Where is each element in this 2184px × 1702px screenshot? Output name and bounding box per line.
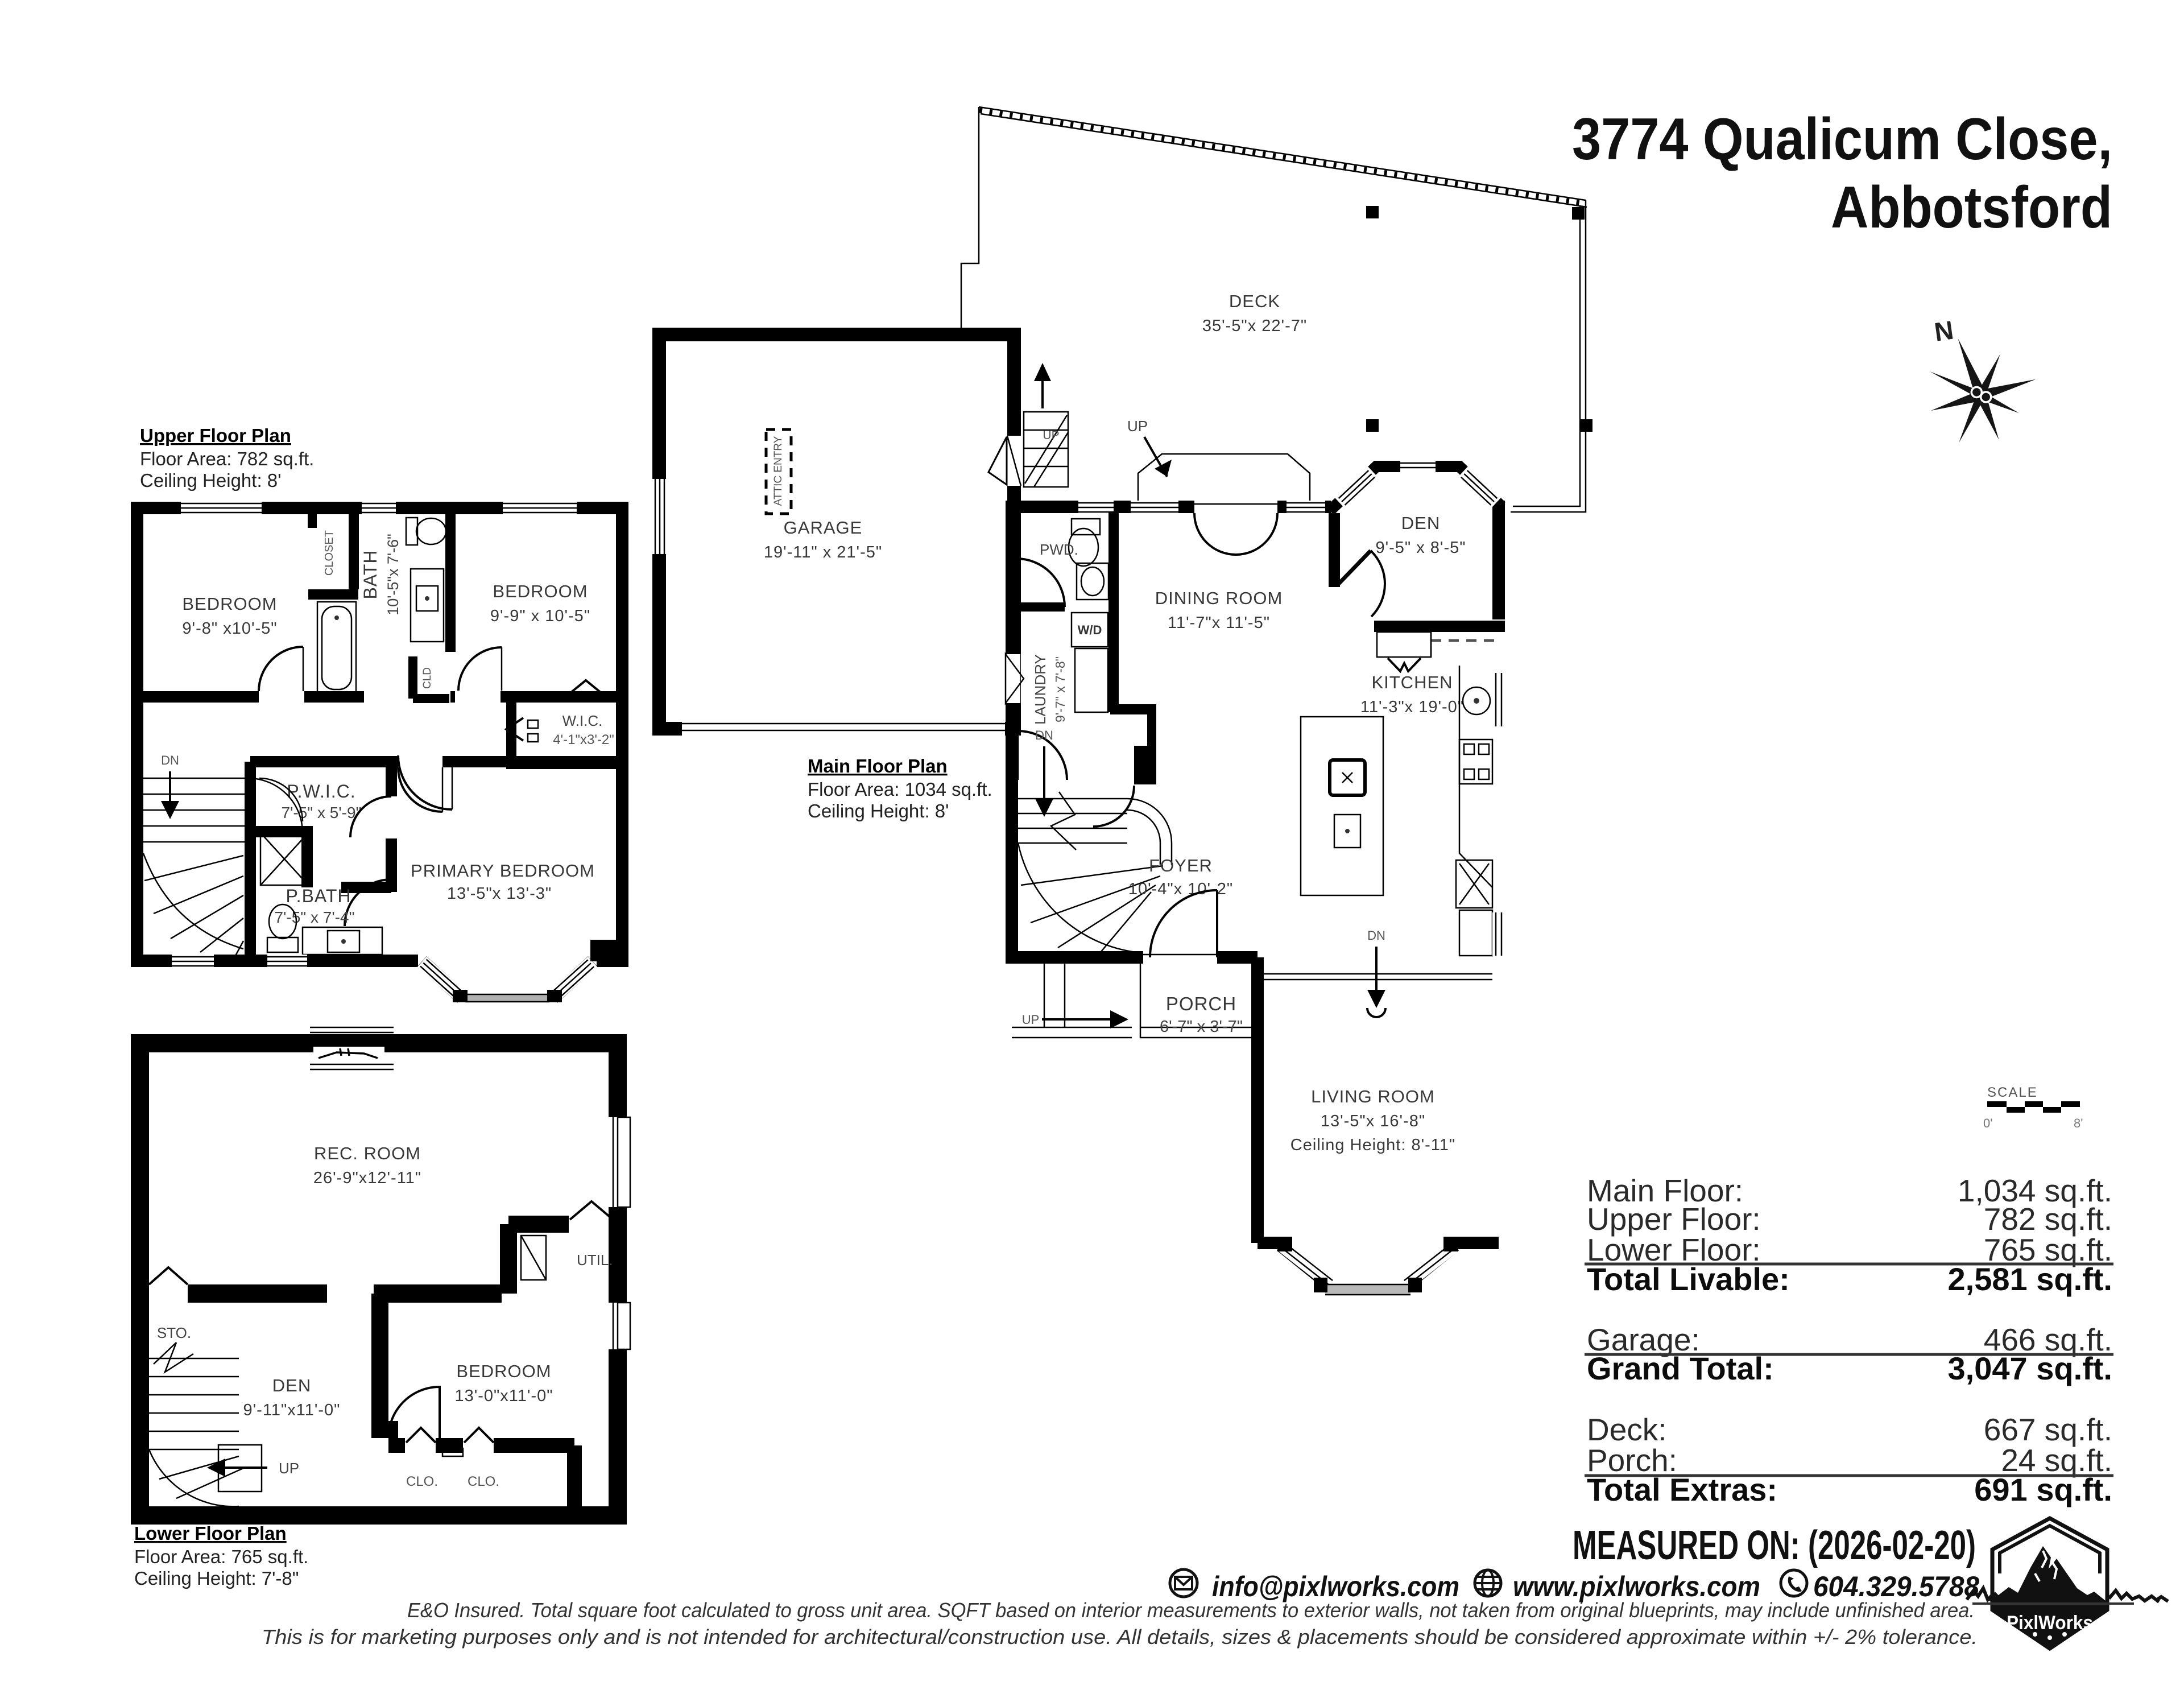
svg-text:3,047 sq.ft.: 3,047 sq.ft. (1948, 1350, 2112, 1386)
svg-text:11'-3"x 19'-0": 11'-3"x 19'-0" (1360, 698, 1464, 716)
svg-text:782 sq.ft.: 782 sq.ft. (1984, 1201, 2112, 1237)
svg-text:KITCHEN: KITCHEN (1371, 672, 1453, 692)
svg-text:PWD.: PWD. (1040, 541, 1078, 558)
svg-text:0': 0' (1983, 1116, 1992, 1130)
svg-text:10'-5"x 7'-6": 10'-5"x 7'-6" (384, 534, 402, 615)
svg-text:13'-5"x 13'-3": 13'-5"x 13'-3" (447, 885, 552, 903)
svg-text:Upper Floor Plan: Upper Floor Plan (140, 425, 291, 446)
svg-text:LIVING ROOM: LIVING ROOM (1311, 1087, 1435, 1106)
svg-text:ATTIC ENTRY: ATTIC ENTRY (772, 436, 784, 506)
svg-text:PORCH: PORCH (1166, 993, 1236, 1014)
svg-text:9'-9" x 10'-5": 9'-9" x 10'-5" (490, 607, 590, 625)
svg-text:9'-11"x11'-0": 9'-11"x11'-0" (243, 1401, 341, 1419)
svg-text:2,581 sq.ft.: 2,581 sq.ft. (1948, 1261, 2112, 1297)
svg-text:DECK: DECK (1229, 291, 1280, 311)
svg-text:SCALE: SCALE (1987, 1085, 2038, 1100)
svg-text:STO.: STO. (157, 1324, 191, 1341)
svg-text:13'-5"x 16'-8": 13'-5"x 16'-8" (1321, 1112, 1425, 1130)
svg-text:Ceiling Height: 8'-11": Ceiling Height: 8'-11" (1290, 1136, 1455, 1154)
svg-text:Floor Area: 782 sq.ft.: Floor Area: 782 sq.ft. (140, 448, 314, 469)
svg-text:19'-11" x 21'-5": 19'-11" x 21'-5" (764, 543, 882, 561)
svg-text:4'-1"x3'-2": 4'-1"x3'-2" (553, 732, 614, 747)
svg-text:8': 8' (2074, 1116, 2083, 1130)
svg-text:Main Floor Plan: Main Floor Plan (808, 755, 948, 776)
svg-text:MEASURED ON: (2026-02-20): MEASURED ON: (2026-02-20) (1573, 1523, 1976, 1568)
svg-text:BATH: BATH (360, 550, 380, 600)
svg-text:CLO.: CLO. (406, 1474, 438, 1489)
svg-text:P.BATH: P.BATH (286, 886, 351, 906)
svg-text:DINING ROOM: DINING ROOM (1155, 588, 1283, 608)
svg-text:Floor Area: 1034 sq.ft.: Floor Area: 1034 sq.ft. (808, 779, 992, 800)
svg-text:This is for marketing purposes: This is for marketing purposes only and … (262, 1625, 1978, 1649)
svg-text:Lower Floor Plan: Lower Floor Plan (134, 1523, 287, 1544)
svg-text:E&O Insured. Total square foo: E&O Insured. Total square foot calculate… (407, 1598, 1975, 1622)
svg-text:W/D: W/D (1078, 623, 1102, 637)
svg-text:BEDROOM: BEDROOM (456, 1361, 551, 1381)
svg-text:REC. ROOM: REC. ROOM (314, 1143, 421, 1163)
svg-text:UP: UP (279, 1460, 299, 1477)
svg-text:DN: DN (1035, 728, 1053, 742)
svg-text:667 sq.ft.: 667 sq.ft. (1984, 1412, 2112, 1447)
svg-text:Ceiling Height: 8': Ceiling Height: 8' (140, 470, 281, 491)
svg-text:Floor Area: 765 sq.ft.: Floor Area: 765 sq.ft. (134, 1546, 308, 1567)
svg-text:Total Livable:: Total Livable: (1587, 1261, 1790, 1297)
svg-text:BEDROOM: BEDROOM (493, 581, 588, 601)
svg-text:UP: UP (1127, 418, 1148, 435)
svg-text:7'-5" x 5'-9": 7'-5" x 5'-9" (281, 804, 361, 821)
svg-text:604.329.5788: 604.329.5788 (1813, 1571, 1979, 1602)
svg-text:691 sq.ft.: 691 sq.ft. (1974, 1472, 2112, 1507)
svg-text:CLD: CLD (421, 667, 433, 689)
svg-text:UP: UP (1022, 1013, 1040, 1027)
svg-text:LAUNDRY: LAUNDRY (1032, 654, 1049, 725)
svg-text:6'-7" x 3'-7": 6'-7" x 3'-7" (1160, 1018, 1243, 1036)
svg-text:DN: DN (1367, 928, 1385, 943)
svg-text:Ceiling Height: 7'-8": Ceiling Height: 7'-8" (134, 1568, 299, 1589)
svg-text:13'-0"x11'-0": 13'-0"x11'-0" (454, 1387, 553, 1405)
svg-text:Upper Floor:: Upper Floor: (1587, 1201, 1761, 1237)
svg-text:GARAGE: GARAGE (784, 518, 863, 538)
svg-text:Abbotsford: Abbotsford (1831, 175, 2112, 241)
svg-text:35'-5"x 22'-7": 35'-5"x 22'-7" (1202, 317, 1307, 335)
svg-text:BEDROOM: BEDROOM (182, 594, 277, 614)
svg-text:11'-7"x 11'-5": 11'-7"x 11'-5" (1168, 614, 1270, 632)
svg-text:PRIMARY BEDROOM: PRIMARY BEDROOM (411, 861, 595, 881)
svg-text:9'-5" x 8'-5": 9'-5" x 8'-5" (1375, 539, 1466, 557)
svg-text:UTIL.: UTIL. (577, 1251, 613, 1269)
svg-text:9'-8" x10'-5": 9'-8" x10'-5" (182, 619, 277, 638)
svg-text:Grand Total:: Grand Total: (1587, 1350, 1774, 1386)
svg-text:info@pixlworks.com: info@pixlworks.com (1212, 1571, 1459, 1602)
svg-text:DN: DN (161, 753, 179, 767)
svg-text:W.I.C.: W.I.C. (562, 712, 603, 729)
svg-text:CLOSET: CLOSET (323, 530, 336, 576)
svg-text:P.W.I.C.: P.W.I.C. (287, 781, 355, 802)
svg-text:Deck:: Deck: (1587, 1412, 1667, 1447)
svg-text:FOYER: FOYER (1149, 856, 1213, 875)
svg-text:DEN: DEN (272, 1375, 311, 1395)
svg-text:9'-7" x 7'-8": 9'-7" x 7'-8" (1053, 656, 1068, 722)
svg-text:3774 Qualicum Close,: 3774 Qualicum Close, (1572, 106, 2112, 172)
svg-text:7'-5" x 7'-4": 7'-5" x 7'-4" (274, 908, 354, 926)
svg-text:www.pixlworks.com: www.pixlworks.com (1513, 1571, 1760, 1602)
svg-text:26'-9"x12'-11": 26'-9"x12'-11" (313, 1169, 421, 1187)
svg-text:CLO.: CLO. (468, 1474, 499, 1489)
svg-text:Total Extras:: Total Extras: (1587, 1472, 1777, 1507)
svg-text:PixlWorks: PixlWorks (2007, 1612, 2093, 1634)
svg-text:Ceiling Height: 8': Ceiling Height: 8' (808, 800, 949, 821)
svg-text:DEN: DEN (1401, 513, 1440, 533)
svg-text:UP: UP (1043, 429, 1059, 442)
